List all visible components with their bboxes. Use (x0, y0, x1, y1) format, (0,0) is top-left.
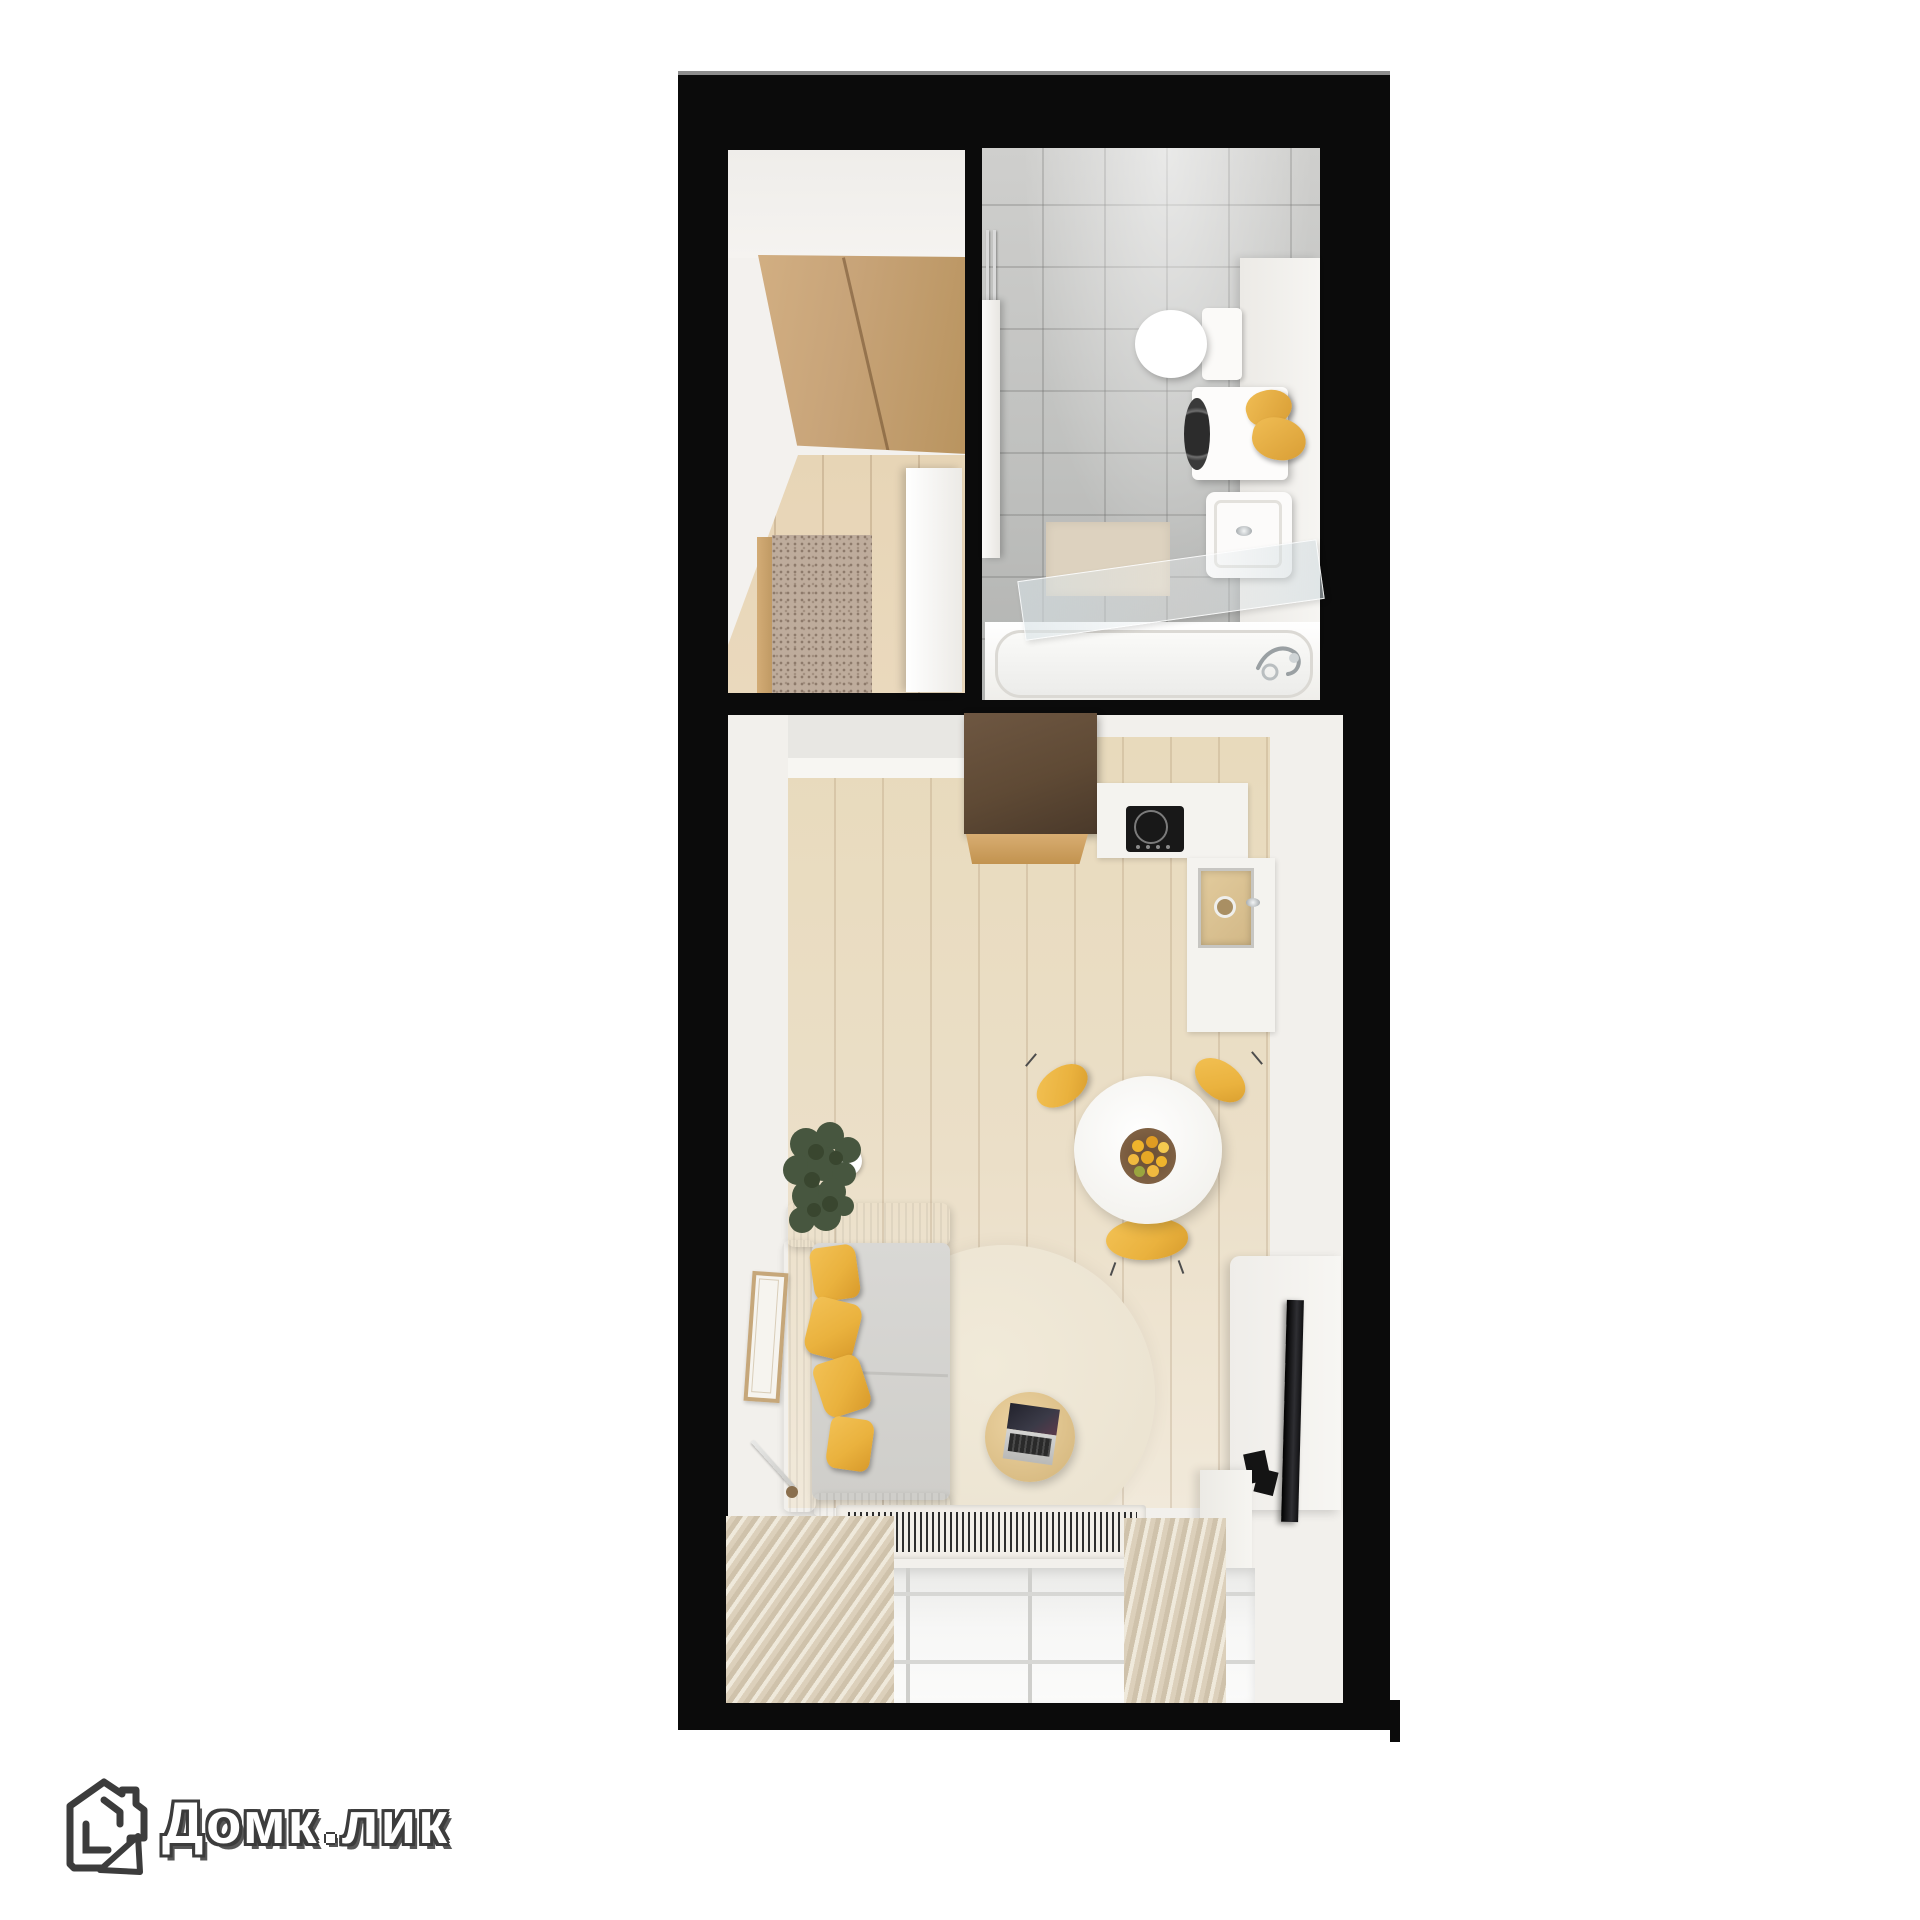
wall-bottom-right-stub (1390, 1700, 1400, 1742)
wall-right (1343, 75, 1390, 1730)
fruit (1141, 1151, 1154, 1164)
fruit (1128, 1154, 1139, 1165)
fruit (1132, 1140, 1144, 1152)
window-mullion (906, 1568, 910, 1703)
laptop (1002, 1403, 1060, 1469)
brand-name-part2: лик (342, 1791, 450, 1856)
bathtub-faucet (1248, 628, 1310, 690)
brand-dot (326, 1834, 335, 1843)
curtain-right (1124, 1518, 1226, 1703)
doormat (772, 535, 872, 693)
laptop-keyboard (1003, 1429, 1057, 1466)
plant (778, 1122, 870, 1237)
kitchen-tall-cabinet (964, 713, 1097, 834)
brand-name-part1: Домк (162, 1791, 319, 1856)
hallway-back-wall (728, 150, 965, 258)
doormat-wood-edge (757, 537, 772, 693)
kitchen-sink-drain (1214, 896, 1236, 918)
wardrobe-door-seam (842, 257, 891, 457)
fruit (1134, 1166, 1145, 1177)
fruit (1146, 1136, 1158, 1148)
hob-control (1166, 845, 1170, 849)
laptop-keys (1008, 1433, 1052, 1457)
fruit (1147, 1165, 1159, 1177)
washing-machine-door (1184, 398, 1210, 470)
curtain-left (726, 1516, 894, 1703)
sofa-pillow (808, 1243, 861, 1303)
kitchen-faucet (1246, 898, 1260, 907)
hallway-open-door (906, 468, 962, 692)
induction-hob (1126, 806, 1184, 852)
toilet-tank (1202, 308, 1242, 380)
kitchen-cabinet-front (966, 834, 1088, 864)
floor-plan-image: Домклик (0, 0, 1920, 1920)
wall-left (678, 75, 728, 1730)
floor-lamp-base (786, 1486, 798, 1498)
wall-hall-bath-partition (965, 75, 982, 715)
bathroom-open-door (982, 300, 1000, 558)
hob-burner-ring (1134, 810, 1168, 844)
sofa-pillow (825, 1415, 876, 1473)
toilet (1135, 310, 1207, 378)
house-icon (60, 1772, 152, 1877)
picture-frame-mat (751, 1278, 779, 1393)
brand-logo: Домклик (60, 1772, 480, 1882)
window-mullion (1028, 1568, 1032, 1703)
fruit (1156, 1156, 1167, 1167)
hob-control (1156, 845, 1160, 849)
hob-control (1136, 845, 1140, 849)
fruit (1158, 1142, 1169, 1153)
hob-control (1146, 845, 1150, 849)
sink-faucet (1236, 526, 1252, 536)
